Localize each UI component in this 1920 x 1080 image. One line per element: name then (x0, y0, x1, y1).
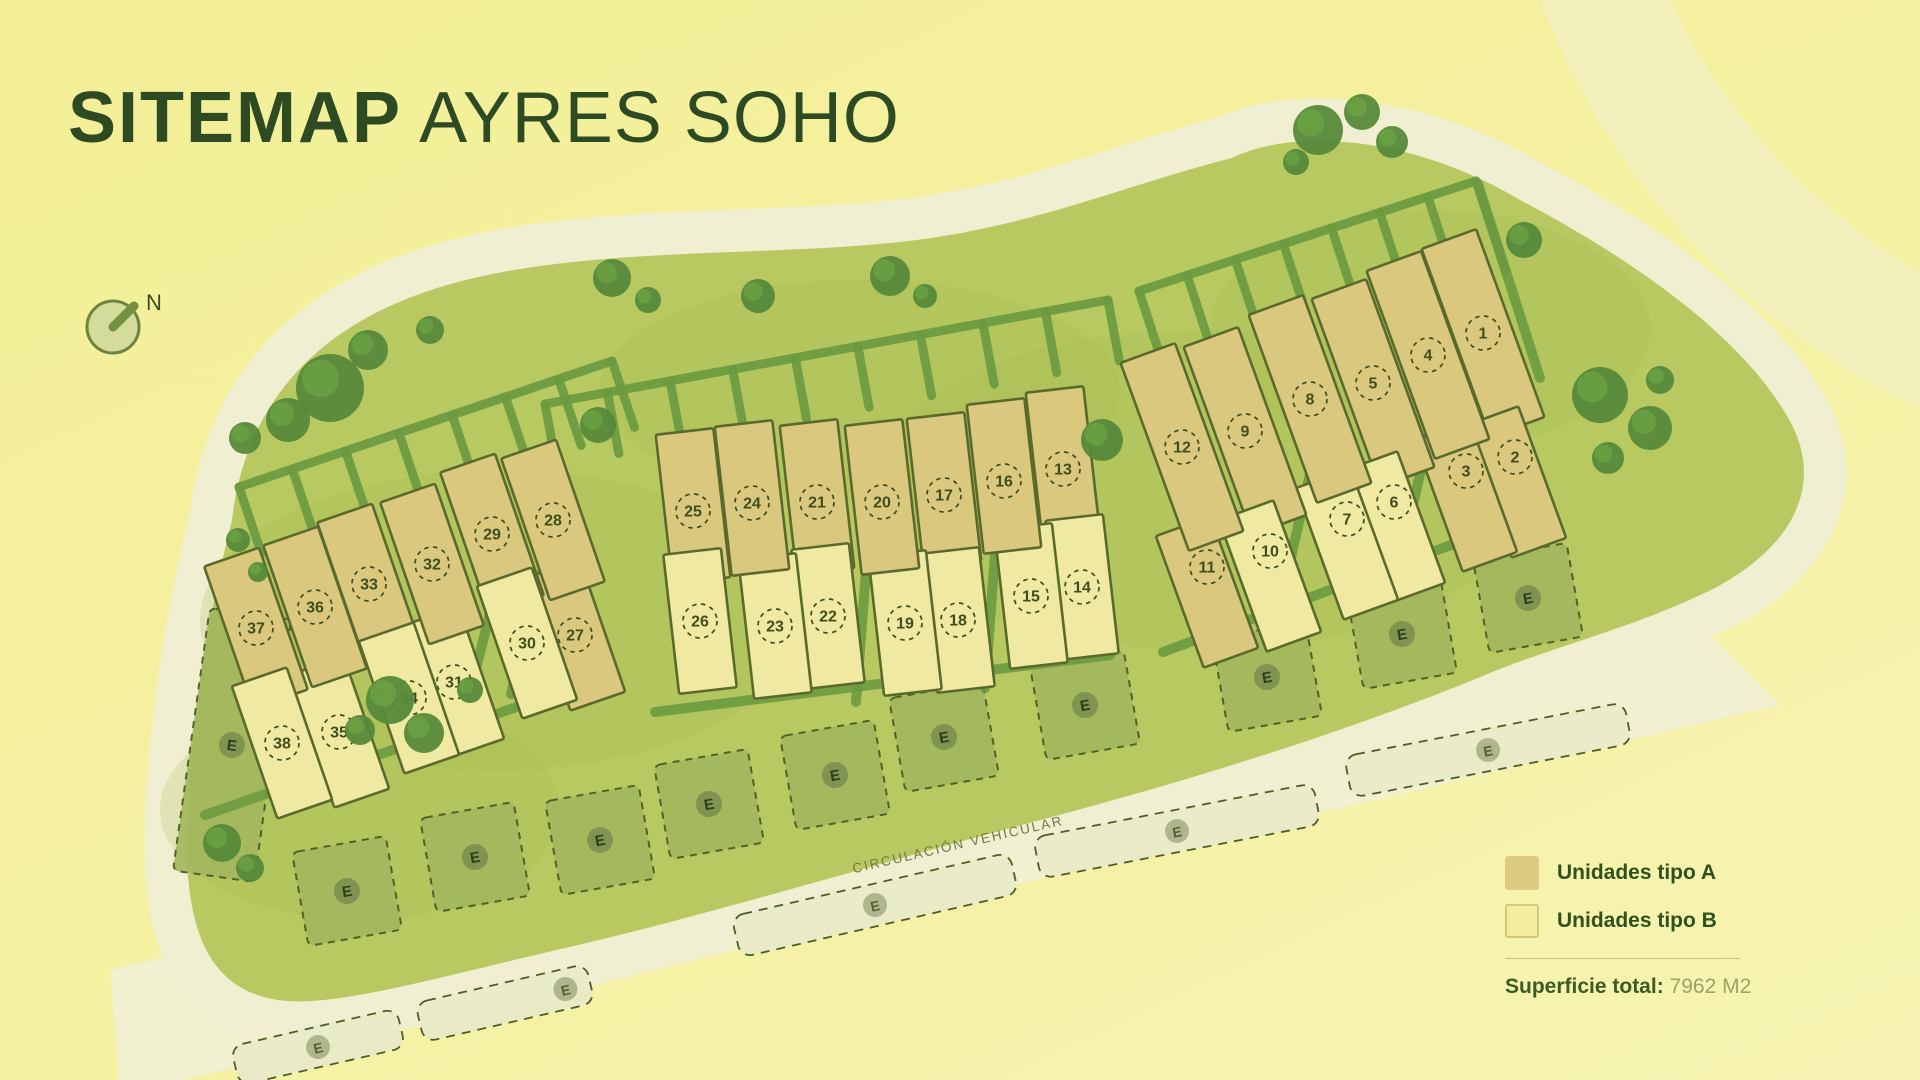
lot-4-number: 4 (1424, 348, 1433, 365)
tree-icon (248, 562, 268, 582)
tree-icon (741, 279, 775, 313)
tree-highlight (370, 680, 396, 706)
compass: N (87, 290, 162, 353)
tree-highlight (1577, 372, 1608, 403)
tree-icon (1572, 367, 1628, 423)
lot-30-number: 30 (518, 636, 536, 653)
tree-highlight (302, 360, 339, 397)
lot-36-number: 36 (306, 600, 324, 617)
tree-highlight (418, 318, 433, 333)
tree-highlight (348, 718, 365, 735)
tree-icon (1592, 442, 1624, 474)
tree-highlight (407, 716, 429, 738)
tree-highlight (1347, 97, 1367, 117)
parking-parcel: E (780, 720, 890, 830)
lot-9-number: 9 (1241, 424, 1250, 441)
tree-highlight (206, 827, 227, 848)
tree-icon (366, 676, 414, 724)
tree-icon (1293, 105, 1343, 155)
lot-32-number: 32 (423, 557, 441, 574)
legend-swatch-tipo-a (1505, 856, 1539, 890)
lot-33-number: 33 (360, 577, 378, 594)
lot-2-number: 2 (1511, 450, 1520, 467)
page-title: SITEMAP AYRES SOHO (68, 82, 900, 154)
total-area: Superficie total: 7962 M2 (1505, 975, 1745, 999)
page-title-light: AYRES SOHO (402, 78, 900, 158)
legend-divider (1505, 958, 1740, 959)
tree-highlight (596, 262, 617, 283)
tree-icon (870, 256, 910, 296)
lot-29-number: 29 (483, 527, 501, 544)
lot-37-number: 37 (247, 621, 265, 638)
legend-label-tipo-b: Unidades tipo B (1557, 909, 1717, 933)
lot-22-number: 22 (819, 609, 837, 626)
lot-5-number: 5 (1369, 376, 1378, 393)
legend: Unidades tipo A Unidades tipo B Superfic… (1505, 856, 1745, 999)
parking-parcel: E (292, 836, 402, 946)
lot-18-number: 18 (949, 613, 967, 630)
tree-highlight (583, 410, 603, 430)
lot-23-number: 23 (766, 619, 784, 636)
tree-highlight (250, 564, 261, 575)
lot-7-number: 7 (1343, 512, 1352, 529)
legend-item-tipo-b: Unidades tipo B (1505, 904, 1745, 938)
lot-16-number: 16 (995, 474, 1013, 491)
lot-20-number: 20 (873, 495, 891, 512)
tree-highlight (873, 259, 895, 281)
tree-highlight (1595, 445, 1613, 463)
lot-24-number: 24 (743, 496, 761, 513)
tree-icon (580, 407, 616, 443)
lot-13-number: 13 (1054, 462, 1072, 479)
tree-icon (416, 316, 444, 344)
tree-highlight (238, 856, 253, 871)
lot-3-number: 3 (1462, 464, 1471, 481)
tree-icon (404, 713, 444, 753)
lot-1-number: 1 (1479, 326, 1488, 343)
tree-highlight (637, 289, 651, 303)
lot-26-number: 26 (691, 614, 709, 631)
tree-highlight (1285, 151, 1299, 165)
tree-highlight (1648, 368, 1663, 383)
tree-icon (1506, 222, 1542, 258)
legend-swatch-tipo-b (1505, 904, 1539, 938)
lot-8-number: 8 (1306, 392, 1315, 409)
tree-icon (1283, 149, 1309, 175)
legend-item-tipo-a: Unidades tipo A (1505, 856, 1745, 890)
tree-highlight (270, 402, 294, 426)
tree-highlight (232, 425, 250, 443)
tree-icon (1081, 419, 1123, 461)
total-area-value: 7962 M2 (1670, 975, 1752, 998)
page-title-bold: SITEMAP (68, 78, 402, 158)
lot-6-number: 6 (1390, 495, 1399, 512)
lot-21-number: 21 (808, 495, 826, 512)
tree-icon (593, 259, 631, 297)
tree-highlight (1297, 109, 1325, 137)
tree-icon (236, 854, 264, 882)
tree-icon (348, 330, 388, 370)
tree-highlight (915, 286, 928, 299)
tree-icon (345, 715, 375, 745)
lot-25-number: 25 (684, 504, 702, 521)
sitemap-page: CIRCULACIÓN VEHICULAREEEEEEEEEEEEEEEE123… (0, 0, 1920, 1080)
tree-icon (203, 824, 241, 862)
tree-icon (226, 528, 250, 552)
tree-highlight (228, 530, 241, 543)
tree-icon (913, 284, 937, 308)
tree-highlight (744, 282, 763, 301)
tree-highlight (1632, 410, 1656, 434)
compass-north-label: N (146, 290, 162, 315)
lot-11-number: 11 (1199, 560, 1216, 577)
lot-14-number: 14 (1073, 580, 1091, 597)
parking-parcel: E (545, 785, 655, 895)
lot-15-number: 15 (1022, 589, 1040, 606)
tree-icon (1628, 406, 1672, 450)
parking-parcel: E (420, 802, 530, 912)
tree-highlight (459, 679, 473, 693)
lot-27-number: 27 (566, 628, 584, 645)
lot-10-number: 10 (1261, 544, 1279, 561)
tree-icon (1376, 126, 1408, 158)
tree-icon (635, 287, 661, 313)
lot-28-number: 28 (544, 513, 562, 530)
lot-38-number: 38 (273, 736, 291, 753)
tree-icon (457, 677, 483, 703)
parking-parcel: E (889, 682, 999, 792)
lot-19-number: 19 (896, 616, 914, 633)
total-area-label: Superficie total: (1505, 975, 1664, 998)
tree-highlight (1085, 423, 1108, 446)
tree-highlight (1379, 129, 1397, 147)
tree-icon (1344, 94, 1380, 130)
lot-12-number: 12 (1173, 440, 1191, 457)
tree-icon (1646, 366, 1674, 394)
tree-highlight (1509, 225, 1529, 245)
tree-icon (266, 398, 310, 442)
lot-17-number: 17 (935, 488, 953, 505)
parking-parcel: E (654, 749, 764, 859)
tree-icon (229, 422, 261, 454)
legend-label-tipo-a: Unidades tipo A (1557, 861, 1716, 885)
tree-highlight (351, 333, 373, 355)
